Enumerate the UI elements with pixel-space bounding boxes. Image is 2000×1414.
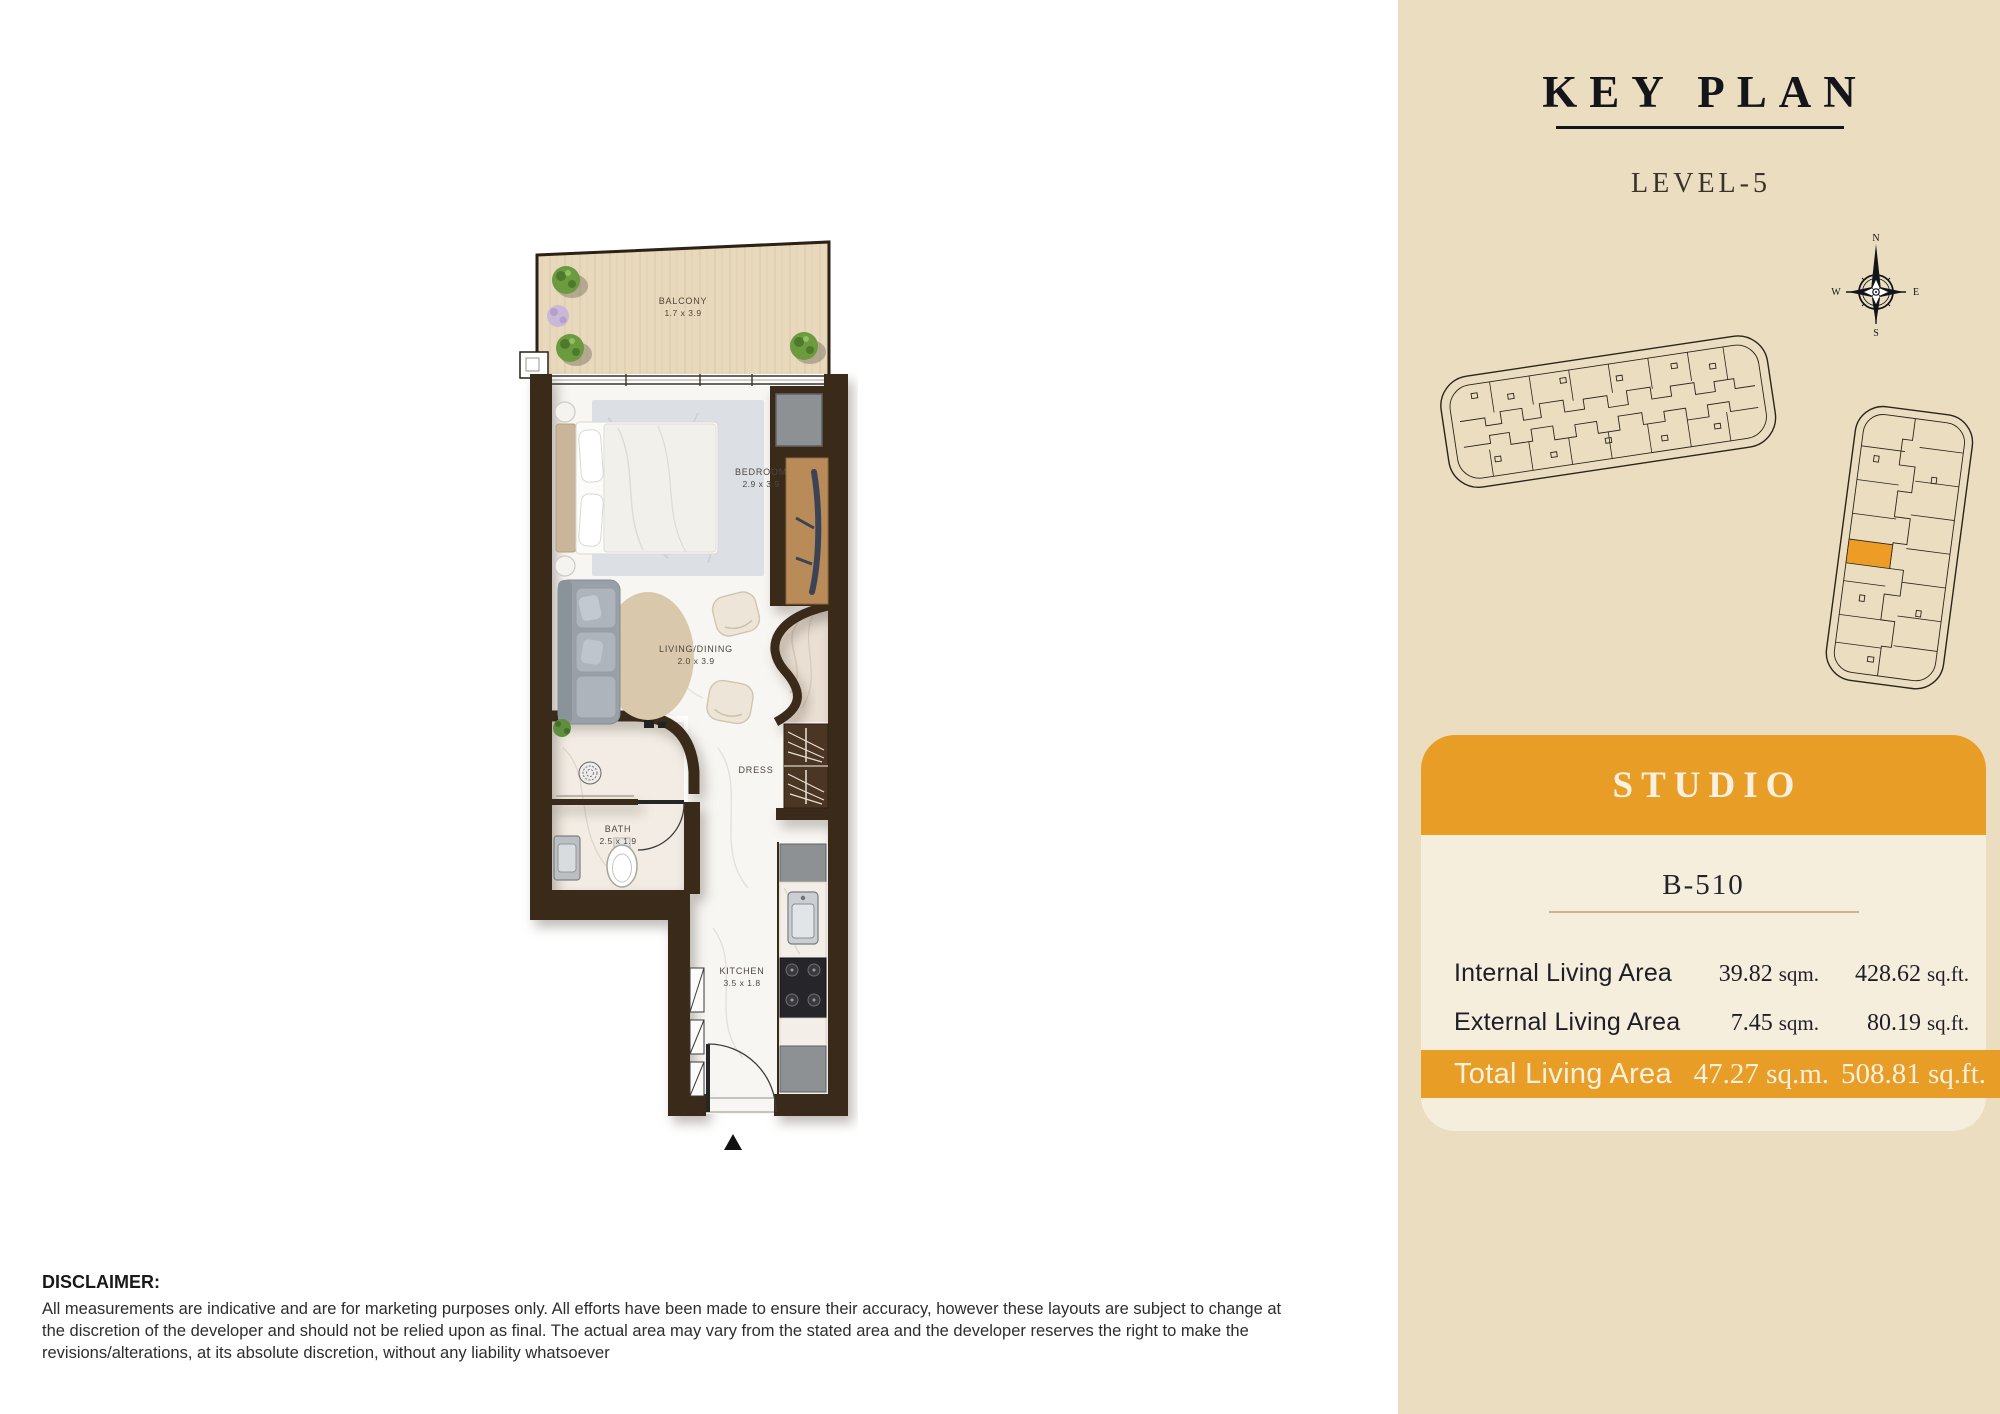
unit-number-underline bbox=[1549, 911, 1859, 913]
bedroom-furniture bbox=[555, 400, 764, 576]
compass-icon: N W E S bbox=[1828, 232, 1924, 342]
kitchen-dims: 3.5 x 1.8 bbox=[723, 978, 760, 988]
building-plan-1 bbox=[1416, 330, 1796, 505]
entrance-arrow-icon bbox=[724, 1134, 742, 1150]
balcony-window-icon bbox=[550, 374, 830, 386]
area-rows: Internal Living Area 39.82sqm. 428.62sq.… bbox=[1454, 959, 1972, 1057]
dress-label: DRESS bbox=[738, 765, 773, 775]
compass-e-label: E bbox=[1913, 287, 1919, 298]
disclaimer: DISCLAIMER: All measurements are indicat… bbox=[42, 1272, 1282, 1364]
living-label: LIVING/DINING bbox=[659, 644, 733, 654]
bedroom-dims: 2.9 x 3.9 bbox=[742, 479, 779, 489]
brochure-page: BALCONY 1.7 x 3.9 BEDROOM 2.9 x 3.9 LIVI… bbox=[0, 0, 2000, 1414]
key-plan-panel: KEY PLAN LEVEL-5 N W E S bbox=[1398, 0, 2000, 1414]
balcony-label: BALCONY bbox=[659, 296, 708, 306]
floor-plan: BALCONY 1.7 x 3.9 BEDROOM 2.9 x 3.9 LIVI… bbox=[518, 228, 858, 1158]
total-area-label: Total Living Area bbox=[1454, 1058, 1672, 1091]
internal-area-sqm: 39.82 bbox=[1719, 961, 1773, 987]
external-area-row: External Living Area 7.45sqm. 80.19sq.ft… bbox=[1454, 1008, 1972, 1037]
external-area-label: External Living Area bbox=[1454, 1008, 1704, 1037]
external-area-sqft: 80.19 bbox=[1867, 1010, 1921, 1036]
bath-dims: 2.5 x 1.9 bbox=[599, 836, 636, 846]
living-dims: 2.0 x 3.9 bbox=[677, 656, 714, 666]
internal-area-sqft: 428.62 bbox=[1855, 961, 1921, 987]
balcony-dims: 1.7 x 3.9 bbox=[664, 308, 701, 318]
unit-type-header: STUDIO bbox=[1421, 735, 1986, 835]
key-plan-title: KEY PLAN bbox=[1398, 66, 2000, 118]
building-plan-2 bbox=[1822, 396, 1982, 706]
unit-type-label: STUDIO bbox=[1605, 764, 1803, 807]
toilet-icon bbox=[607, 845, 637, 887]
total-area-bar: Total Living Area 47.27 sq.m. 508.81 sq.… bbox=[1421, 1050, 2000, 1098]
kitchen-label: KITCHEN bbox=[719, 966, 764, 976]
compass-s-label: S bbox=[1873, 328, 1879, 339]
bedroom-label: BEDROOM bbox=[735, 467, 787, 477]
internal-area-row: Internal Living Area 39.82sqm. 428.62sq.… bbox=[1454, 959, 1972, 988]
key-plan-title-underline bbox=[1556, 126, 1844, 129]
disclaimer-title: DISCLAIMER: bbox=[42, 1272, 1282, 1293]
highlighted-unit bbox=[1846, 539, 1893, 569]
unit-number: B-510 bbox=[1421, 869, 1986, 902]
level-label: LEVEL-5 bbox=[1398, 168, 2000, 200]
bath-label: BATH bbox=[605, 824, 632, 834]
total-area-sqm: 47.27 sq.m. bbox=[1694, 1058, 1829, 1091]
dress-wardrobe bbox=[784, 724, 828, 808]
compass-n-label: N bbox=[1872, 233, 1879, 244]
disclaimer-body: All measurements are indicative and are … bbox=[42, 1298, 1282, 1364]
compass-w-label: W bbox=[1831, 287, 1841, 298]
total-area-sqft: 508.81 sq.ft. bbox=[1841, 1058, 1986, 1091]
internal-area-label: Internal Living Area bbox=[1454, 959, 1704, 988]
external-area-sqm: 7.45 bbox=[1731, 1010, 1773, 1036]
